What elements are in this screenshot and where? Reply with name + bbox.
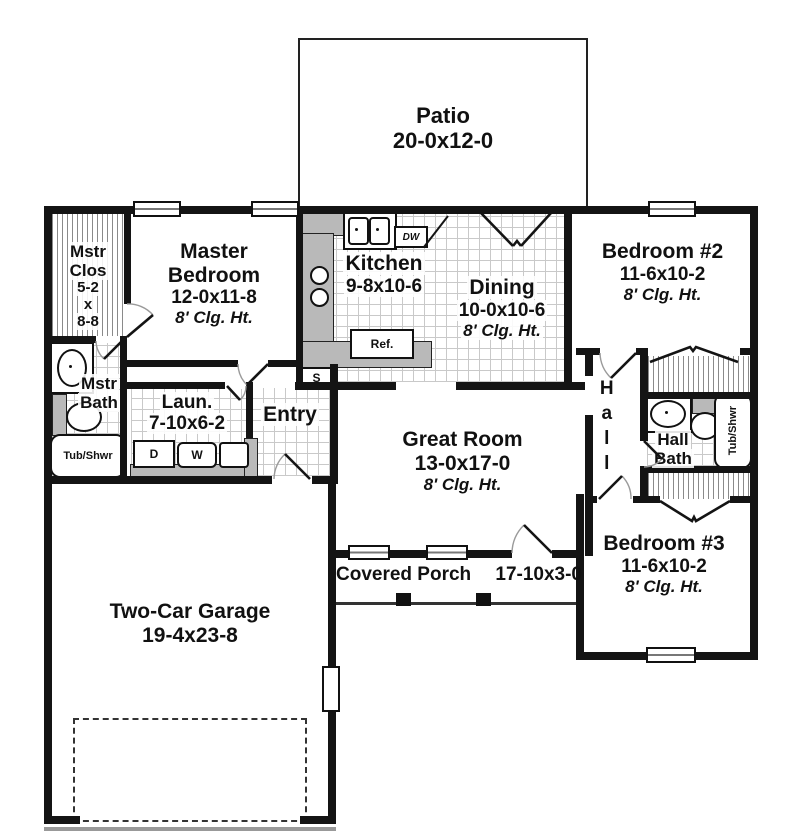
room-dims: 5-2 — [75, 279, 101, 296]
laundry-label: Laun. 7-10x6-2 — [133, 392, 241, 435]
room-name: Mstr — [79, 374, 119, 393]
master-tub-label: Tub/Shwr — [63, 450, 112, 462]
hall-bath-label: Hall Bath — [636, 430, 710, 468]
master-tub-shower: Tub/Shwr — [50, 434, 126, 478]
room-name: Dining — [467, 276, 536, 299]
sink-drain — [376, 228, 379, 231]
room-name: Covered Porch — [336, 564, 471, 585]
room-dims: 12-0x11-8 — [136, 287, 292, 308]
sink-basin — [369, 217, 390, 245]
covered-porch-label: Covered Porch 17-10x3-0 — [336, 564, 582, 585]
garage-door-outline — [73, 718, 307, 822]
master-bedroom-label: Master Bedroom 12-0x11-8 8' Clg. Ht. — [136, 240, 292, 327]
wall — [585, 496, 597, 503]
hall-bath-sink — [650, 400, 686, 428]
dishwasher: DW — [394, 226, 428, 248]
room-name: Bedroom — [136, 264, 292, 288]
wall — [296, 206, 303, 382]
entry-label: Entry — [250, 403, 330, 427]
refrigerator-label: Ref. — [371, 337, 394, 351]
room-name: Clos — [68, 261, 109, 280]
room-name: Bedroom #2 — [580, 240, 745, 264]
sink-drain — [665, 411, 668, 414]
wall — [633, 496, 660, 503]
wall — [126, 360, 238, 367]
room-name: Bath — [652, 449, 694, 468]
master-closet-label: Mstr Clos 5-2 x 8-8 — [50, 242, 126, 330]
room-dims: 13-0x17-0 — [365, 452, 560, 476]
window — [646, 647, 696, 663]
room-name: Bedroom #3 — [578, 532, 750, 556]
hall-tub-label: Tub/Shwr — [727, 406, 739, 455]
entry-tile-floor — [252, 388, 330, 476]
room-dims: 9-8x10-6 — [344, 276, 424, 297]
cooktop-burner — [310, 288, 329, 307]
bedroom3-closet-bifold — [660, 501, 730, 521]
wall — [640, 355, 648, 395]
room-dims: 7-10x6-2 — [147, 413, 227, 434]
master-bedroom-door — [238, 364, 268, 385]
wall — [328, 706, 336, 824]
sink-drain — [355, 228, 358, 231]
wall — [564, 206, 572, 382]
room-dims: 10-0x10-6 — [457, 300, 548, 321]
dryer: D — [133, 440, 175, 468]
room-dims: 11-6x10-2 — [580, 264, 745, 285]
front-door — [512, 525, 552, 553]
wall — [576, 348, 600, 355]
floor-plan: Patio 20-0x12-0 — [0, 0, 800, 834]
wall — [44, 476, 272, 484]
bedroom3-label: Bedroom #3 11-6x10-2 8' Clg. Ht. — [578, 532, 750, 596]
room-dims: 20-0x12-0 — [300, 129, 586, 154]
wall — [44, 816, 80, 824]
sink-drain — [69, 365, 72, 368]
refrigerator: Ref. — [350, 329, 414, 359]
window — [348, 545, 390, 560]
room-dims: x — [82, 296, 94, 313]
wall — [127, 382, 225, 389]
dining-label: Dining 10-0x10-6 8' Clg. Ht. — [444, 276, 560, 340]
room-dims: 8-8 — [75, 313, 101, 330]
laundry-sink — [219, 442, 249, 468]
driveway-apron — [44, 827, 336, 831]
wall — [456, 382, 585, 390]
room-ceiling: 8' Clg. Ht. — [578, 577, 750, 596]
room-name: Laun. — [160, 392, 215, 413]
bedroom2-label: Bedroom #2 11-6x10-2 8' Clg. Ht. — [580, 240, 745, 304]
kitchen-label: Kitchen 9-8x10-6 — [333, 252, 435, 297]
window — [648, 201, 696, 217]
wall — [730, 496, 750, 503]
room-name: Two-Car Garage — [78, 600, 302, 624]
window — [133, 201, 181, 217]
room-dims: 19-4x23-8 — [78, 624, 302, 648]
wall — [640, 392, 750, 399]
hall-label: Hall — [596, 378, 617, 478]
room-name: Bath — [78, 393, 120, 412]
room-name: Great Room — [365, 428, 560, 452]
wall — [740, 348, 750, 355]
room-name: Entry — [261, 403, 319, 426]
window — [426, 545, 468, 560]
patio-label: Patio 20-0x12-0 — [300, 104, 586, 153]
porch-edge — [332, 602, 578, 605]
bedroom2-door — [600, 353, 636, 378]
dishwasher-label: DW — [403, 232, 420, 243]
garage-side-door — [322, 666, 340, 712]
cooktop-burner — [310, 266, 329, 285]
room-name: Hall — [596, 378, 617, 478]
room-ceiling: 8' Clg. Ht. — [580, 285, 745, 304]
wall — [328, 478, 336, 668]
room-dims: 11-6x10-2 — [578, 556, 750, 577]
washer: W — [177, 442, 217, 468]
room-ceiling: 8' Clg. Ht. — [365, 475, 560, 494]
wall — [295, 382, 396, 390]
wall — [750, 206, 758, 660]
bedroom2-closet-hatch — [648, 356, 750, 392]
sink-basin — [348, 217, 369, 245]
room-name: Mstr — [68, 242, 108, 261]
room-name: Patio — [300, 104, 586, 129]
window — [251, 201, 299, 217]
room-dims: 17-10x3-0 — [495, 564, 582, 585]
wall — [268, 360, 302, 367]
wall — [44, 336, 96, 343]
bedroom3-door — [599, 476, 631, 499]
room-ceiling: 8' Clg. Ht. — [136, 308, 292, 327]
room-name: Kitchen — [343, 252, 424, 275]
room-ceiling: 8' Clg. Ht. — [461, 321, 543, 340]
great-room-label: Great Room 13-0x17-0 8' Clg. Ht. — [365, 428, 560, 494]
porch-post — [396, 593, 411, 606]
porch-post — [476, 593, 491, 606]
washer-label: W — [191, 448, 202, 462]
room-name: Hall — [655, 430, 690, 449]
room-name: Master — [136, 240, 292, 264]
wall — [300, 816, 336, 824]
dryer-label: D — [150, 447, 159, 461]
master-bath-label: Mstr Bath — [70, 374, 128, 412]
toilet-tank — [52, 394, 67, 436]
wall — [636, 348, 648, 355]
hall-tub-shower: Tub/Shwr — [714, 393, 752, 469]
garage-label: Two-Car Garage 19-4x23-8 — [78, 600, 302, 647]
